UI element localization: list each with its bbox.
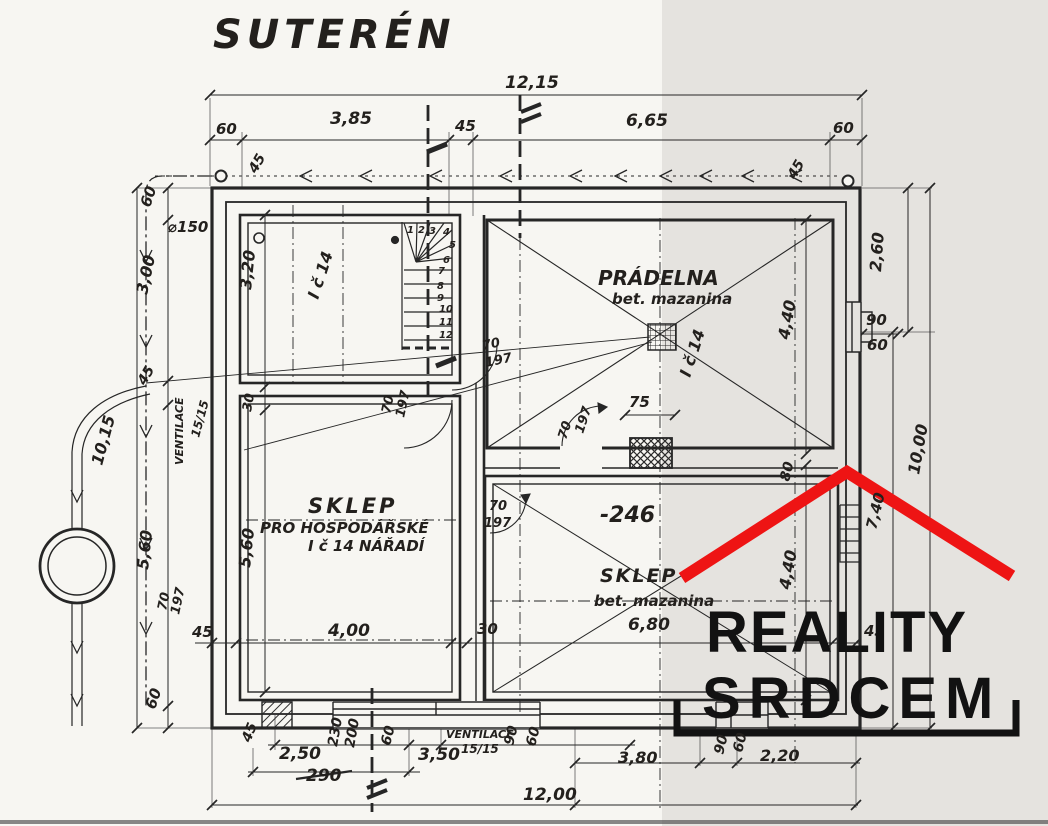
wall-pier	[262, 702, 292, 728]
stairs-label: 4	[442, 227, 450, 238]
stairs-label: 7	[438, 266, 445, 277]
room-name-pradelna: PRÁDELNA	[598, 266, 719, 290]
dims_left-label: 15/15	[188, 399, 211, 439]
dims_top-label: 45	[454, 117, 476, 135]
dims_left-label: 10,15	[88, 413, 119, 467]
plan-title: SUTERÉN	[213, 10, 456, 58]
dims_bottom-label: 2,50	[279, 744, 321, 764]
stairs-label: 3	[429, 226, 436, 237]
dims_top-label: 3,85	[330, 109, 372, 129]
dims_bottom-label: 3,50	[418, 745, 460, 765]
scan-edge	[0, 820, 1048, 824]
doors-label: 197	[393, 388, 414, 419]
rooms-label: 75	[629, 393, 650, 411]
room-name-sklep-right: SKLEP	[600, 565, 677, 587]
dims_left-label: 60	[142, 686, 166, 711]
stairs-label: 10	[439, 304, 453, 315]
room-unit-label: I č 14	[304, 249, 337, 301]
dims_top-label: 60	[216, 120, 237, 138]
dim-overall-width: 12,15	[505, 73, 559, 93]
dim-struck-value: 290	[306, 766, 342, 786]
rooms-label: bet. mazanina	[612, 290, 732, 308]
rooms-label: 3,20	[236, 249, 259, 290]
dims_left-label: 45	[134, 363, 158, 389]
room-name-sklep-left: SKLEP	[308, 494, 398, 518]
door-hinge	[392, 237, 399, 244]
doors-label: 197	[168, 585, 189, 616]
dims_left-label: 3,00	[132, 253, 159, 296]
dims_right-label: 90	[866, 311, 887, 329]
doors-label: 197	[573, 404, 596, 435]
dims_bottom-label: 4,00	[327, 621, 370, 641]
floor-drain	[648, 324, 676, 350]
stairs-label: 9	[437, 293, 444, 304]
dims_bottom-label: 2,20	[760, 746, 799, 765]
floorplan-drawing: SUTERÉN12,15603,85456,6560454560⌀1503,00…	[0, 0, 1048, 826]
stairs-label: 1	[407, 225, 414, 236]
survey-point-left	[216, 171, 227, 182]
stairs-label: 6	[443, 255, 450, 266]
stairs-label: 11	[439, 317, 453, 328]
dims_bottom-label: 12,00	[523, 785, 577, 805]
stairs-label: 8	[437, 281, 444, 292]
doors-label: 70	[489, 499, 507, 514]
dims_bottom-label: 90	[501, 724, 521, 747]
floorplan-page: SUTERÉN12,15603,85456,6560454560⌀1503,00…	[0, 0, 1048, 826]
dims_top-label: 45	[245, 151, 269, 177]
dims_bottom-label: 3,80	[618, 748, 657, 767]
rooms-label: PRO HOSPODÁŘSKÉ	[260, 518, 429, 537]
dims_left-label: VENTILACE	[173, 397, 186, 465]
dims_bottom-label: 6,80	[628, 615, 670, 635]
dims_right-label: 60	[867, 336, 888, 354]
watermark-line1: REALITY	[706, 600, 968, 665]
dims_top-label: 6,65	[626, 111, 668, 131]
dims_bottom-label: 15/15	[461, 742, 499, 756]
dims_left-label: ⌀150	[168, 218, 208, 236]
well-circle	[40, 529, 114, 603]
dims_left-label: 45	[238, 720, 261, 745]
dims_top-label: 60	[833, 119, 854, 137]
dims_bottom-label: 30	[477, 620, 498, 638]
chimney	[630, 438, 672, 468]
rooms-label: bet. mazanina	[594, 592, 714, 610]
dims_bottom-label: 60	[378, 724, 398, 747]
rooms-label: 5,60	[235, 527, 258, 568]
survey-point-right	[843, 176, 854, 187]
stairs-label: 2	[418, 225, 425, 236]
dims_left-label: 5,60	[133, 529, 156, 570]
dims_bottom-label: 45	[191, 623, 213, 641]
dims_right-label: 2,60	[866, 232, 888, 273]
rooms-label: 30	[240, 392, 258, 412]
watermark-line2: SRDCEM	[702, 666, 1001, 731]
doors-label: 197	[484, 516, 512, 531]
stairs-label: 5	[449, 240, 456, 251]
level-mark: -246	[600, 503, 655, 528]
stairs-label: 12	[439, 330, 453, 341]
rooms-label: I č 14 NÁŘADÍ	[308, 536, 426, 555]
